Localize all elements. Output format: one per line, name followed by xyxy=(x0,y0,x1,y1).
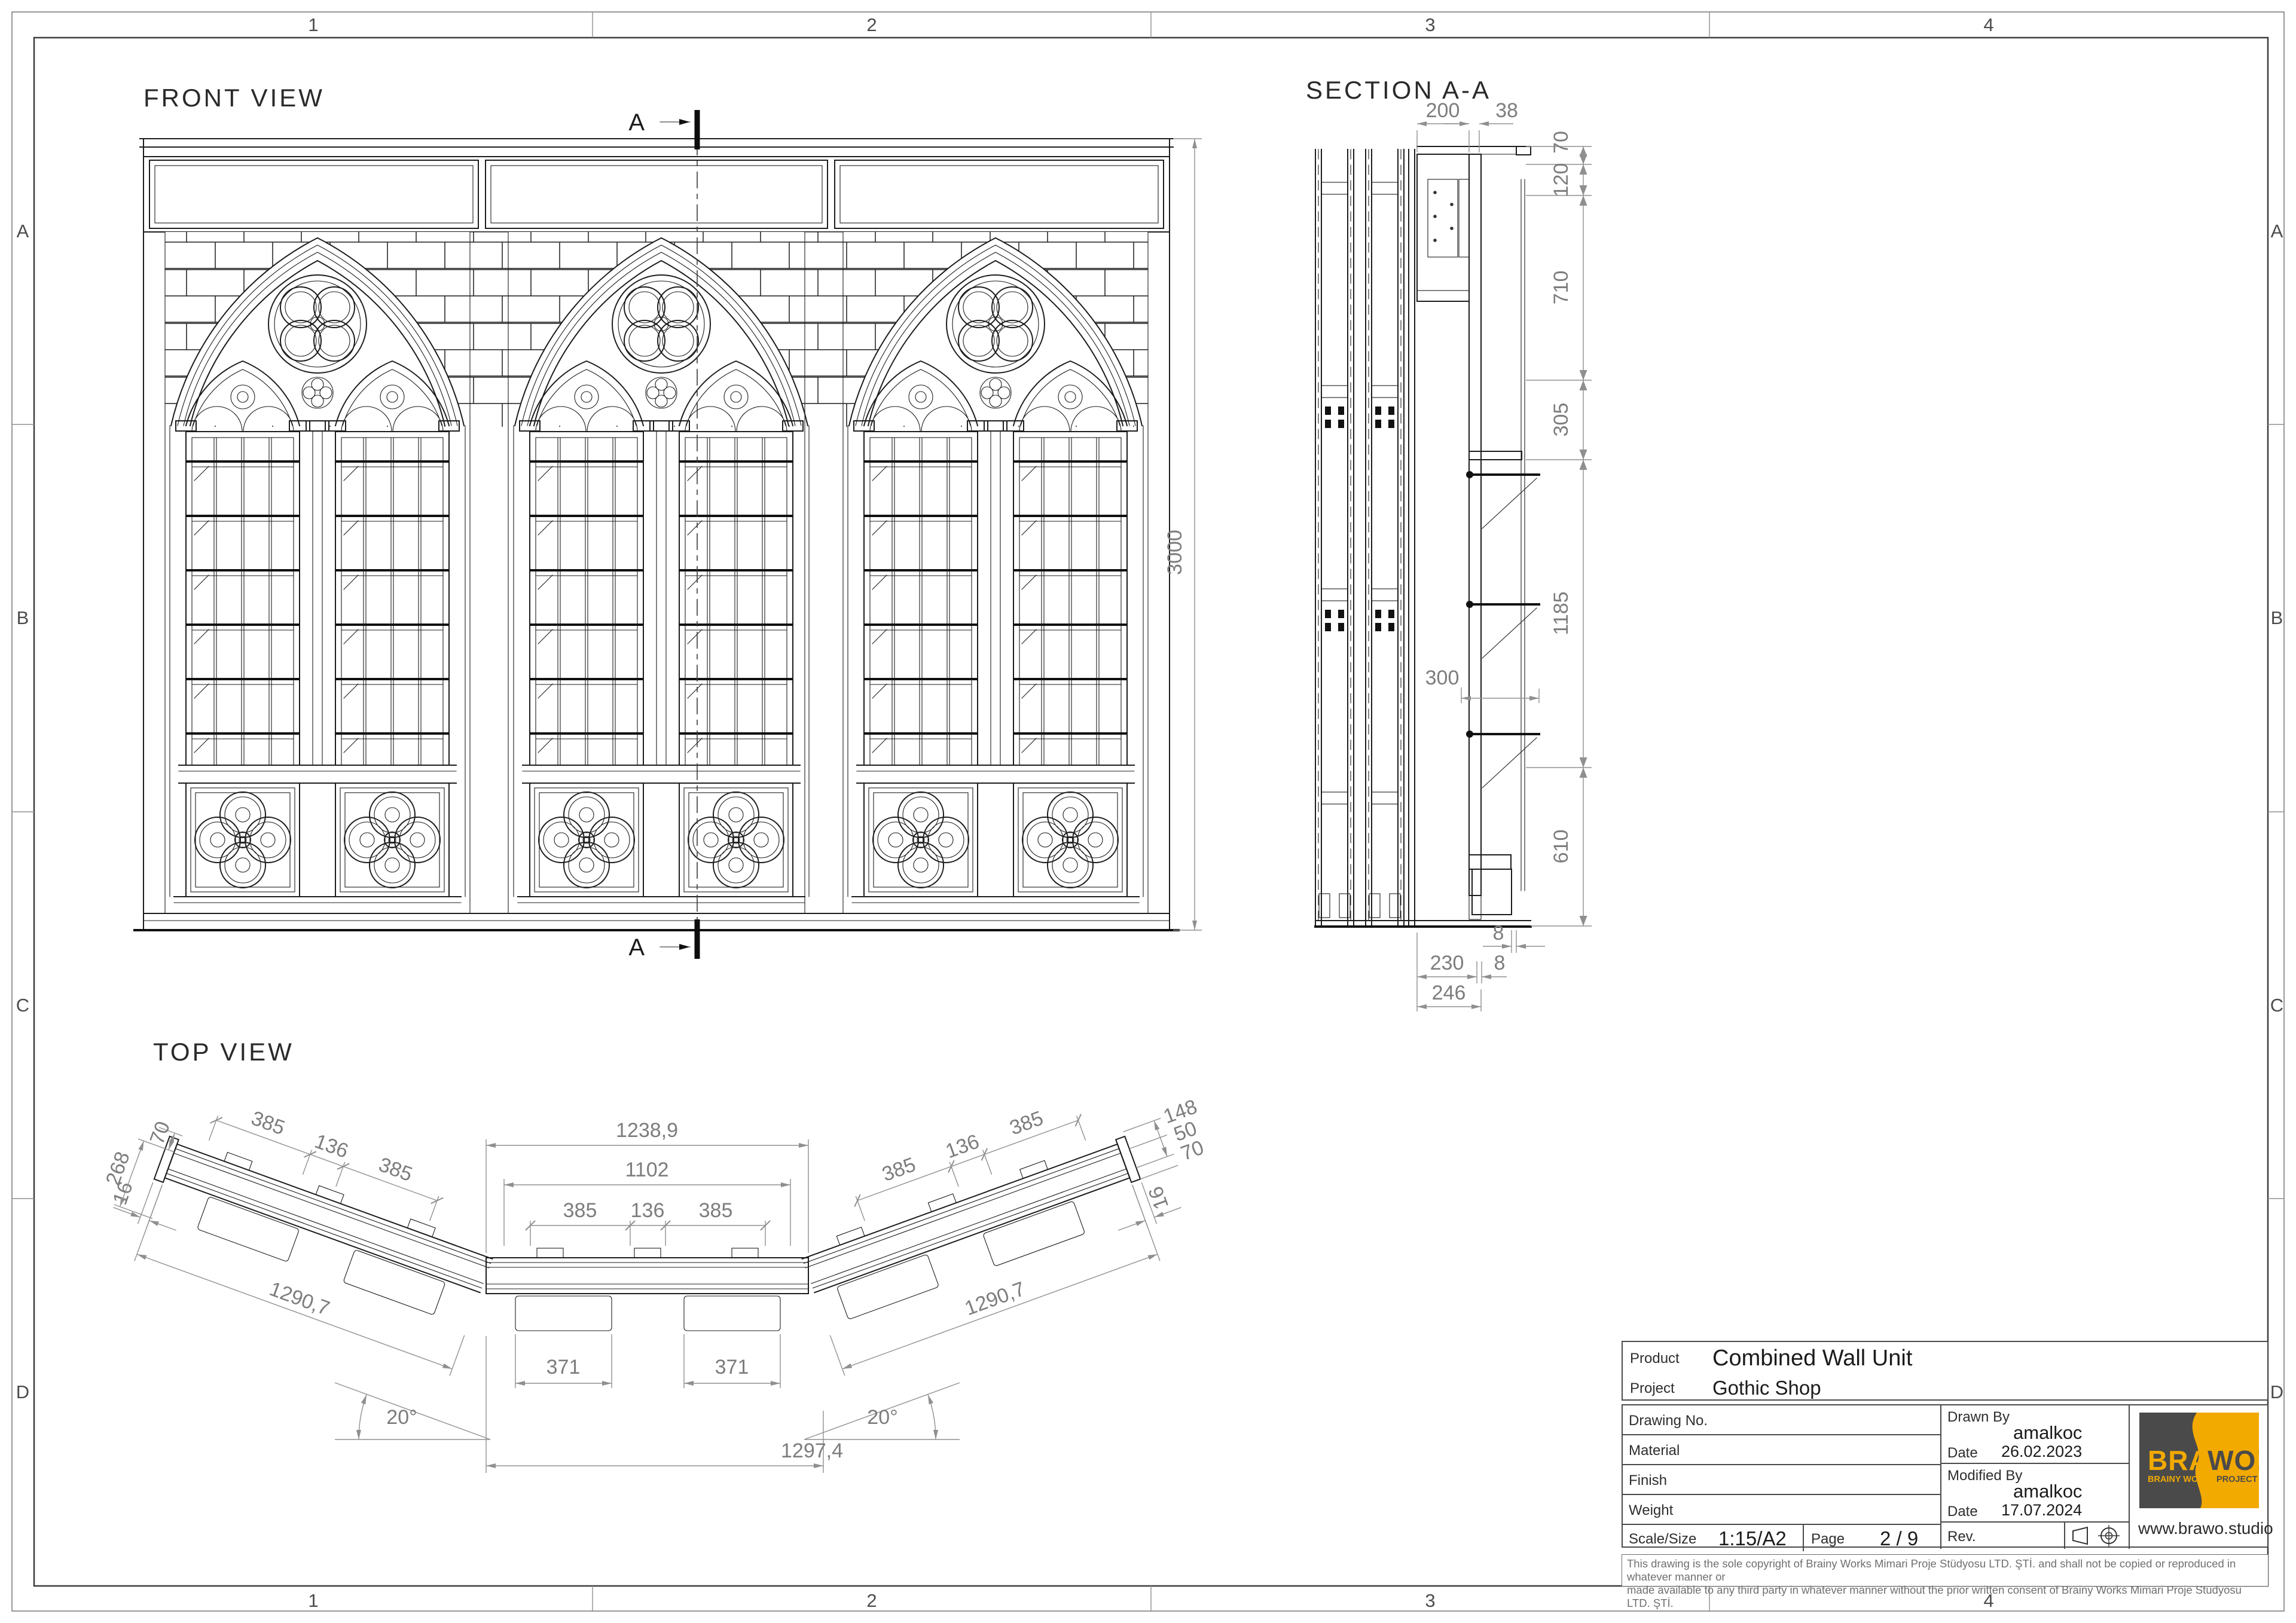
drawn-by-value: amalkoc xyxy=(2013,1422,2082,1444)
project-value: Gothic Shop xyxy=(1712,1377,1821,1399)
grid-col-4-top: 4 xyxy=(1983,14,1993,35)
svg-text:1102: 1102 xyxy=(625,1159,668,1181)
grid-row-c-left: C xyxy=(16,995,29,1016)
svg-text:246: 246 xyxy=(1432,982,1466,1004)
svg-text:3000: 3000 xyxy=(1164,530,1186,575)
svg-text:385: 385 xyxy=(375,1153,415,1186)
svg-text:385: 385 xyxy=(699,1199,733,1222)
drawn-date-label: Date xyxy=(1947,1445,1978,1462)
scale-label: Scale/Size xyxy=(1629,1531,1696,1548)
svg-text:610: 610 xyxy=(1550,830,1573,864)
product-project-box: Product Combined Wall Unit Project Gothi… xyxy=(1622,1341,2268,1401)
section-dim-right: 70 120 710 305 1185 610 xyxy=(1526,131,1592,926)
svg-text:385: 385 xyxy=(879,1153,918,1186)
svg-text:20°: 20° xyxy=(386,1406,417,1429)
disclaimer-line-2: made available to any third party in wha… xyxy=(1627,1584,2263,1610)
svg-text:136: 136 xyxy=(312,1130,351,1163)
svg-text:136: 136 xyxy=(942,1130,982,1163)
svg-text:385: 385 xyxy=(1007,1107,1046,1139)
svg-text:20°: 20° xyxy=(867,1406,897,1429)
svg-text:200: 200 xyxy=(1426,99,1460,122)
top-view: TOP VIEW 385 136 385 xyxy=(80,1038,1242,1473)
grid-col-1-bottom: 1 xyxy=(308,1590,318,1611)
section-view: SECTION A-A xyxy=(1306,76,1592,1011)
drawn-date-value: 26.02.2023 xyxy=(2001,1442,2082,1461)
svg-text:385: 385 xyxy=(563,1199,597,1222)
svg-text:38: 38 xyxy=(1495,99,1518,122)
modified-by-label: Modified By xyxy=(1947,1468,2022,1484)
top-view-angle-right: 20° xyxy=(804,1383,960,1439)
finish-label: Finish xyxy=(1629,1472,1667,1489)
modified-date-label: Date xyxy=(1947,1503,1978,1520)
svg-text:300: 300 xyxy=(1425,667,1460,689)
section-view-title: SECTION A-A xyxy=(1306,76,1491,104)
grid-row-a-right: A xyxy=(2271,221,2283,242)
brawo-logo: BRAWO! BRAINY WORKSPROJECT STUDIO xyxy=(2139,1413,2259,1508)
grid-row-d-left: D xyxy=(16,1381,29,1402)
grid-row-a-left: A xyxy=(17,221,29,242)
rev-label: Rev. xyxy=(1947,1529,1976,1545)
front-view-title: FRONT VIEW xyxy=(143,84,325,112)
modified-date-value: 17.07.2024 xyxy=(2001,1501,2082,1520)
modified-by-value: amalkoc xyxy=(2013,1481,2082,1502)
grid-col-3-top: 3 xyxy=(1425,14,1435,35)
front-view: FRONT VIEW A A xyxy=(135,84,1202,961)
grid-row-c-right: C xyxy=(2270,995,2283,1016)
project-label: Project xyxy=(1630,1380,1675,1397)
section-dim-300: 300 xyxy=(1425,667,1539,703)
svg-text:1238,9: 1238,9 xyxy=(616,1119,678,1142)
grid-col-2-top: 2 xyxy=(866,14,877,35)
svg-text:371: 371 xyxy=(546,1356,581,1379)
svg-text:120: 120 xyxy=(1550,163,1573,197)
grid-col-1-top: 1 xyxy=(308,14,318,35)
svg-text:268: 268 xyxy=(102,1148,135,1188)
top-view-right-wing: 385 136 385 1290,7 16 148 50 70 xyxy=(781,1056,1242,1376)
cut-label-bottom: A xyxy=(628,934,645,961)
grid-col-2-bottom: 2 xyxy=(866,1590,877,1611)
svg-text:371: 371 xyxy=(715,1356,749,1379)
svg-text:70: 70 xyxy=(1550,131,1573,154)
material-label: Material xyxy=(1629,1442,1680,1459)
product-label: Product xyxy=(1630,1350,1680,1367)
weight-label: Weight xyxy=(1629,1502,1673,1519)
scale-value: 1:15/A2 xyxy=(1718,1527,1787,1550)
svg-text:8: 8 xyxy=(1493,922,1504,945)
svg-text:1297,4: 1297,4 xyxy=(781,1439,843,1462)
projection-symbol-icon xyxy=(2068,1524,2128,1548)
top-view-left-wing: 385 136 385 1290,7 16 268 70 xyxy=(80,1066,514,1376)
svg-text:136: 136 xyxy=(631,1199,665,1222)
brand-website: www.brawo.studio xyxy=(2138,1519,2273,1538)
section-dim-bottom: 8 230 8 246 xyxy=(1417,922,1545,1011)
top-view-title: TOP VIEW xyxy=(153,1038,294,1066)
drawing-no-label: Drawing No. xyxy=(1629,1413,1708,1429)
drawn-by-label: Drawn By xyxy=(1947,1409,2010,1426)
product-value: Combined Wall Unit xyxy=(1712,1346,1912,1371)
svg-text:8: 8 xyxy=(1494,952,1506,974)
title-block: Product Combined Wall Unit Project Gothi… xyxy=(1622,1341,2268,1586)
drawing-sheet: 1 2 3 4 1 2 3 4 A B C D A B C D FRONT VI… xyxy=(0,0,2296,1623)
page-label: Page xyxy=(1811,1531,1845,1548)
disclaimer-box: This drawing is the sole copyright of Br… xyxy=(1622,1554,2268,1587)
section-dim-top: 200 38 xyxy=(1417,99,1518,152)
grid-row-b-right: B xyxy=(2271,607,2283,628)
page-value: 2 / 9 xyxy=(1880,1527,1918,1550)
svg-text:230: 230 xyxy=(1430,952,1464,974)
svg-text:710: 710 xyxy=(1550,271,1573,305)
svg-text:BRAWO!: BRAWO! xyxy=(2148,1445,2259,1476)
top-view-angle-left: 20° xyxy=(335,1383,490,1439)
cut-label-top: A xyxy=(628,109,645,136)
title-table: Drawing No. Material Finish Weight Scale… xyxy=(1622,1404,2268,1548)
svg-text:1185: 1185 xyxy=(1550,591,1573,635)
section-shelves xyxy=(1466,471,1539,788)
svg-text:385: 385 xyxy=(248,1107,288,1139)
svg-text:BRAINY WORKSPROJECT STUDIO: BRAINY WORKSPROJECT STUDIO xyxy=(2148,1475,2259,1484)
disclaimer-line-1: This drawing is the sole copyright of Br… xyxy=(1627,1557,2263,1584)
grid-row-d-right: D xyxy=(2270,1381,2283,1402)
grid-row-b-left: B xyxy=(17,607,29,628)
svg-text:16: 16 xyxy=(1144,1184,1173,1213)
top-view-center xyxy=(486,1248,808,1331)
grid-col-3-bottom: 3 xyxy=(1425,1590,1435,1611)
svg-text:305: 305 xyxy=(1550,403,1573,437)
